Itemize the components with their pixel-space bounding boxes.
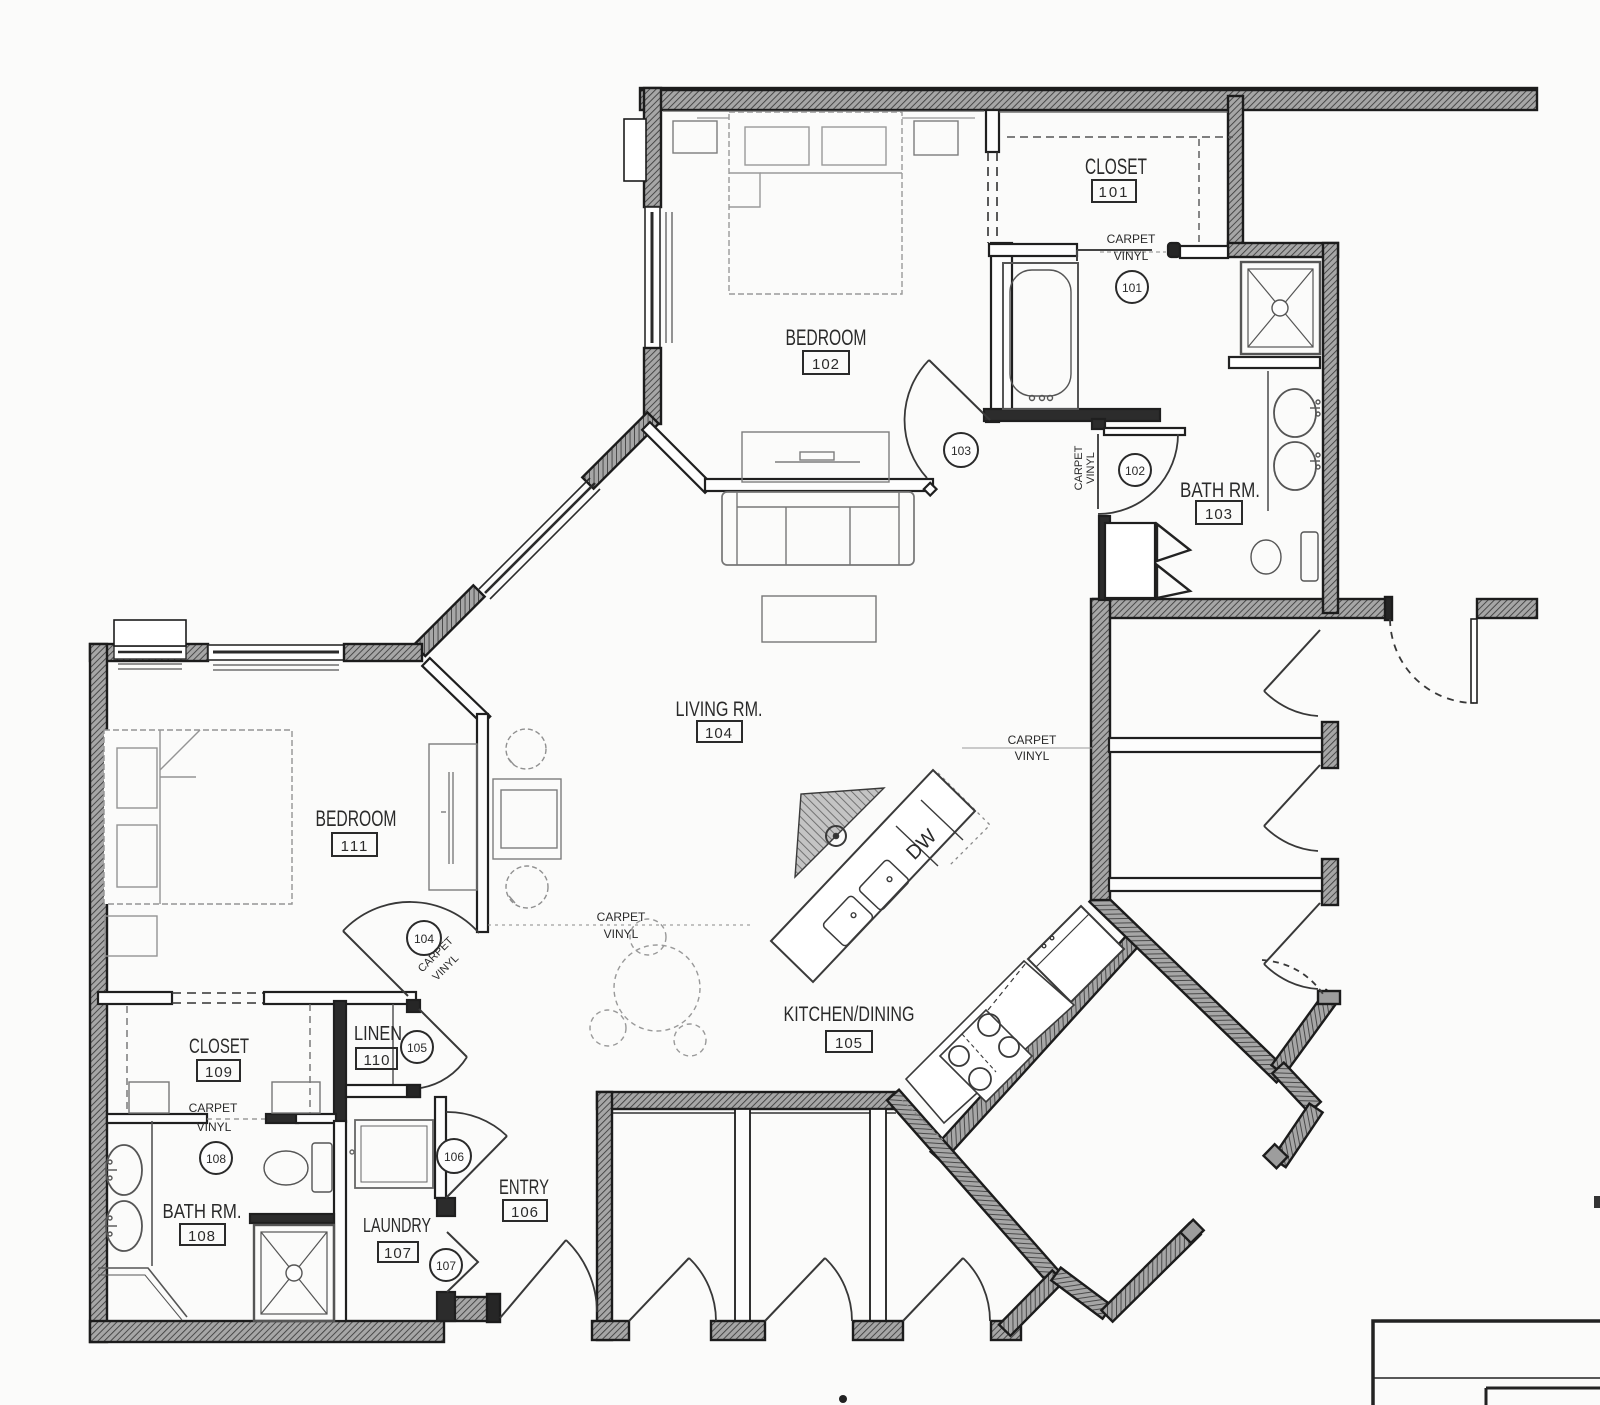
svg-text:110: 110 xyxy=(364,1052,391,1069)
svg-text:109: 109 xyxy=(205,1064,233,1081)
svg-text:CLOSET: CLOSET xyxy=(1085,154,1147,179)
svg-text:103: 103 xyxy=(951,444,971,458)
svg-text:ENTRY: ENTRY xyxy=(499,1176,549,1199)
svg-text:VINYL: VINYL xyxy=(197,1120,232,1134)
svg-text:CARPET: CARPET xyxy=(1008,733,1057,747)
svg-text:VINYL: VINYL xyxy=(1114,249,1149,263)
svg-text:VINYL: VINYL xyxy=(1085,452,1097,484)
svg-text:108: 108 xyxy=(188,1228,216,1245)
svg-text:101: 101 xyxy=(1098,184,1129,201)
svg-text:CARPET: CARPET xyxy=(1107,232,1156,246)
svg-text:101: 101 xyxy=(1122,281,1142,295)
svg-text:CARPET: CARPET xyxy=(1073,445,1085,490)
svg-text:102: 102 xyxy=(1125,464,1145,478)
svg-text:105: 105 xyxy=(407,1041,427,1055)
svg-text:BEDROOM: BEDROOM xyxy=(316,806,397,831)
svg-text:LAUNDRY: LAUNDRY xyxy=(363,1215,431,1237)
svg-text:103: 103 xyxy=(1205,506,1233,523)
svg-text:LIVING RM.: LIVING RM. xyxy=(676,698,763,721)
svg-text:BATH RM.: BATH RM. xyxy=(1180,479,1260,502)
svg-text:VINYL: VINYL xyxy=(1015,749,1050,763)
svg-text:106: 106 xyxy=(511,1204,539,1221)
svg-text:BEDROOM: BEDROOM xyxy=(786,325,867,350)
svg-text:104: 104 xyxy=(414,932,434,946)
svg-text:106: 106 xyxy=(444,1150,464,1164)
svg-text:VINYL: VINYL xyxy=(604,927,639,941)
svg-text:CARPET: CARPET xyxy=(597,910,646,924)
svg-text:107: 107 xyxy=(436,1259,456,1273)
svg-text:KITCHEN/DINING: KITCHEN/DINING xyxy=(784,1003,915,1026)
svg-text:CLOSET: CLOSET xyxy=(189,1035,249,1058)
svg-text:104: 104 xyxy=(705,725,733,742)
svg-text:BATH RM.: BATH RM. xyxy=(163,1201,242,1223)
svg-text:111: 111 xyxy=(341,838,370,855)
svg-text:105: 105 xyxy=(835,1035,863,1052)
svg-text:108: 108 xyxy=(206,1152,226,1166)
svg-text:CARPET: CARPET xyxy=(189,1101,238,1115)
svg-text:107: 107 xyxy=(384,1245,412,1262)
svg-text:LINEN: LINEN xyxy=(354,1023,402,1045)
svg-text:102: 102 xyxy=(812,356,840,373)
